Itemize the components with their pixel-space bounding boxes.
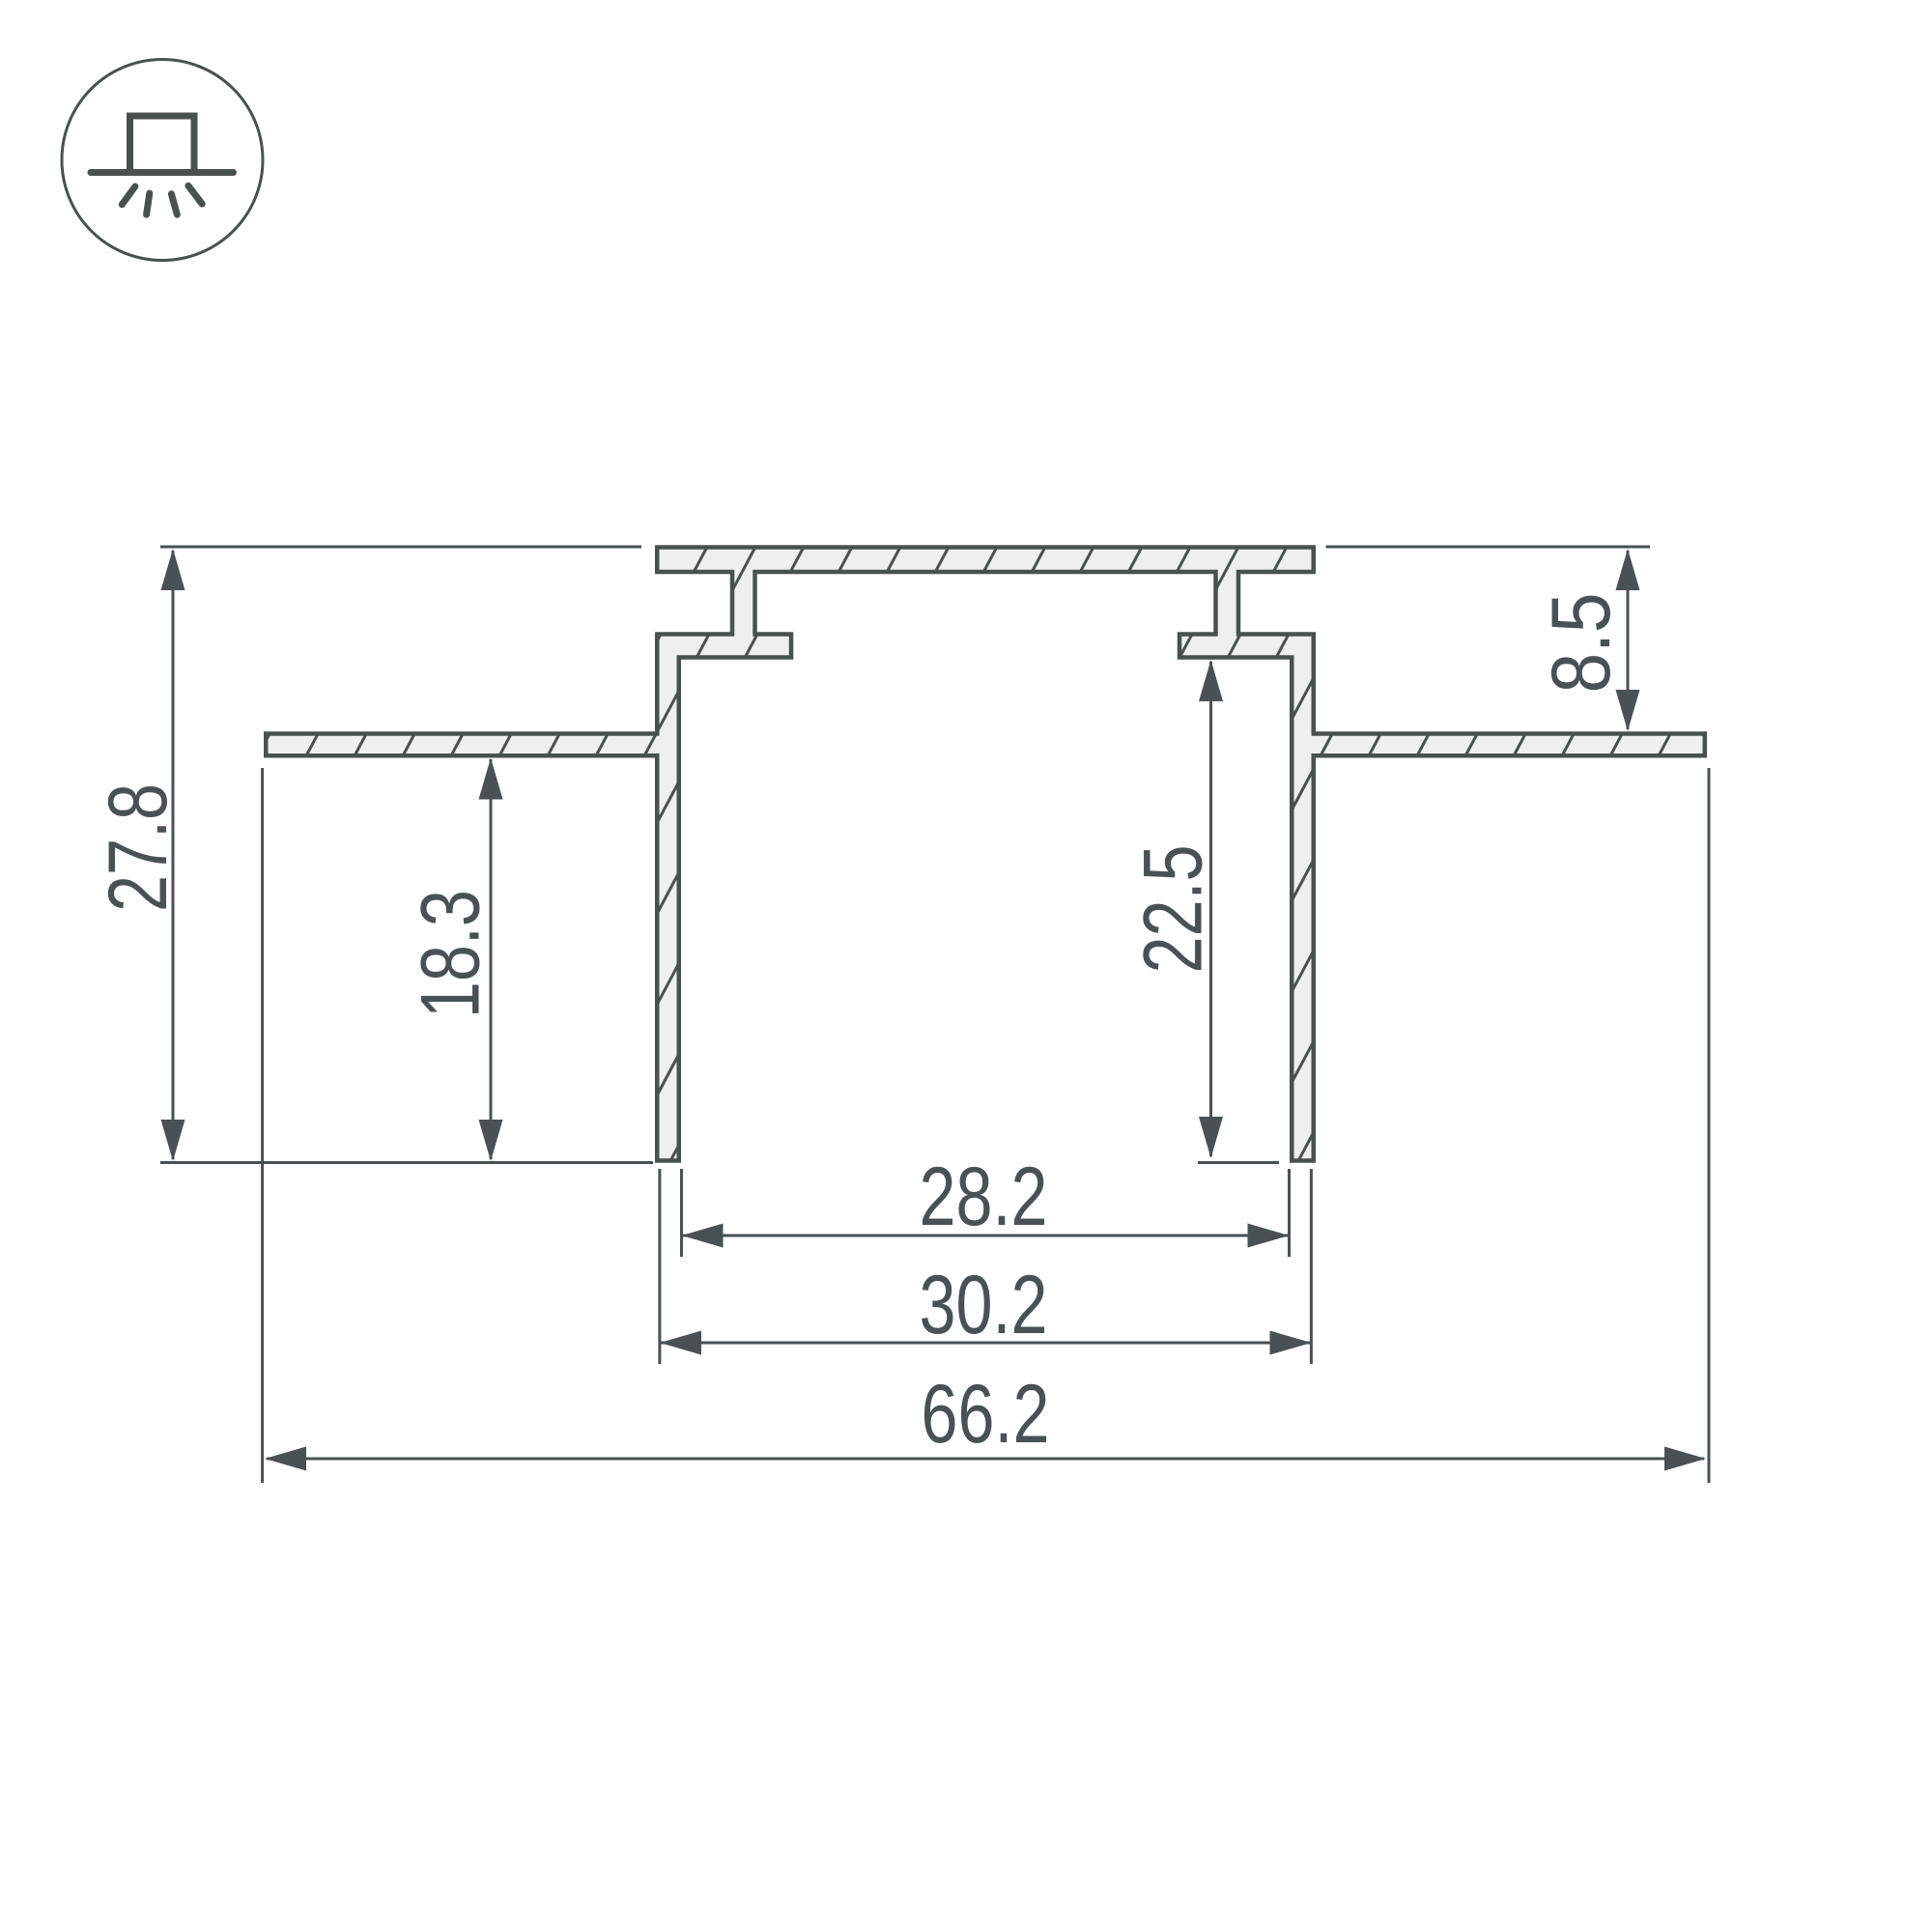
svg-text:66.2: 66.2 <box>922 1368 1050 1461</box>
svg-text:22.5: 22.5 <box>1127 845 1220 974</box>
svg-text:8.5: 8.5 <box>1535 593 1628 694</box>
svg-text:28.2: 28.2 <box>920 1151 1048 1243</box>
svg-text:30.2: 30.2 <box>920 1259 1048 1351</box>
svg-text:18.3: 18.3 <box>405 890 497 1018</box>
svg-text:27.8: 27.8 <box>92 783 185 912</box>
